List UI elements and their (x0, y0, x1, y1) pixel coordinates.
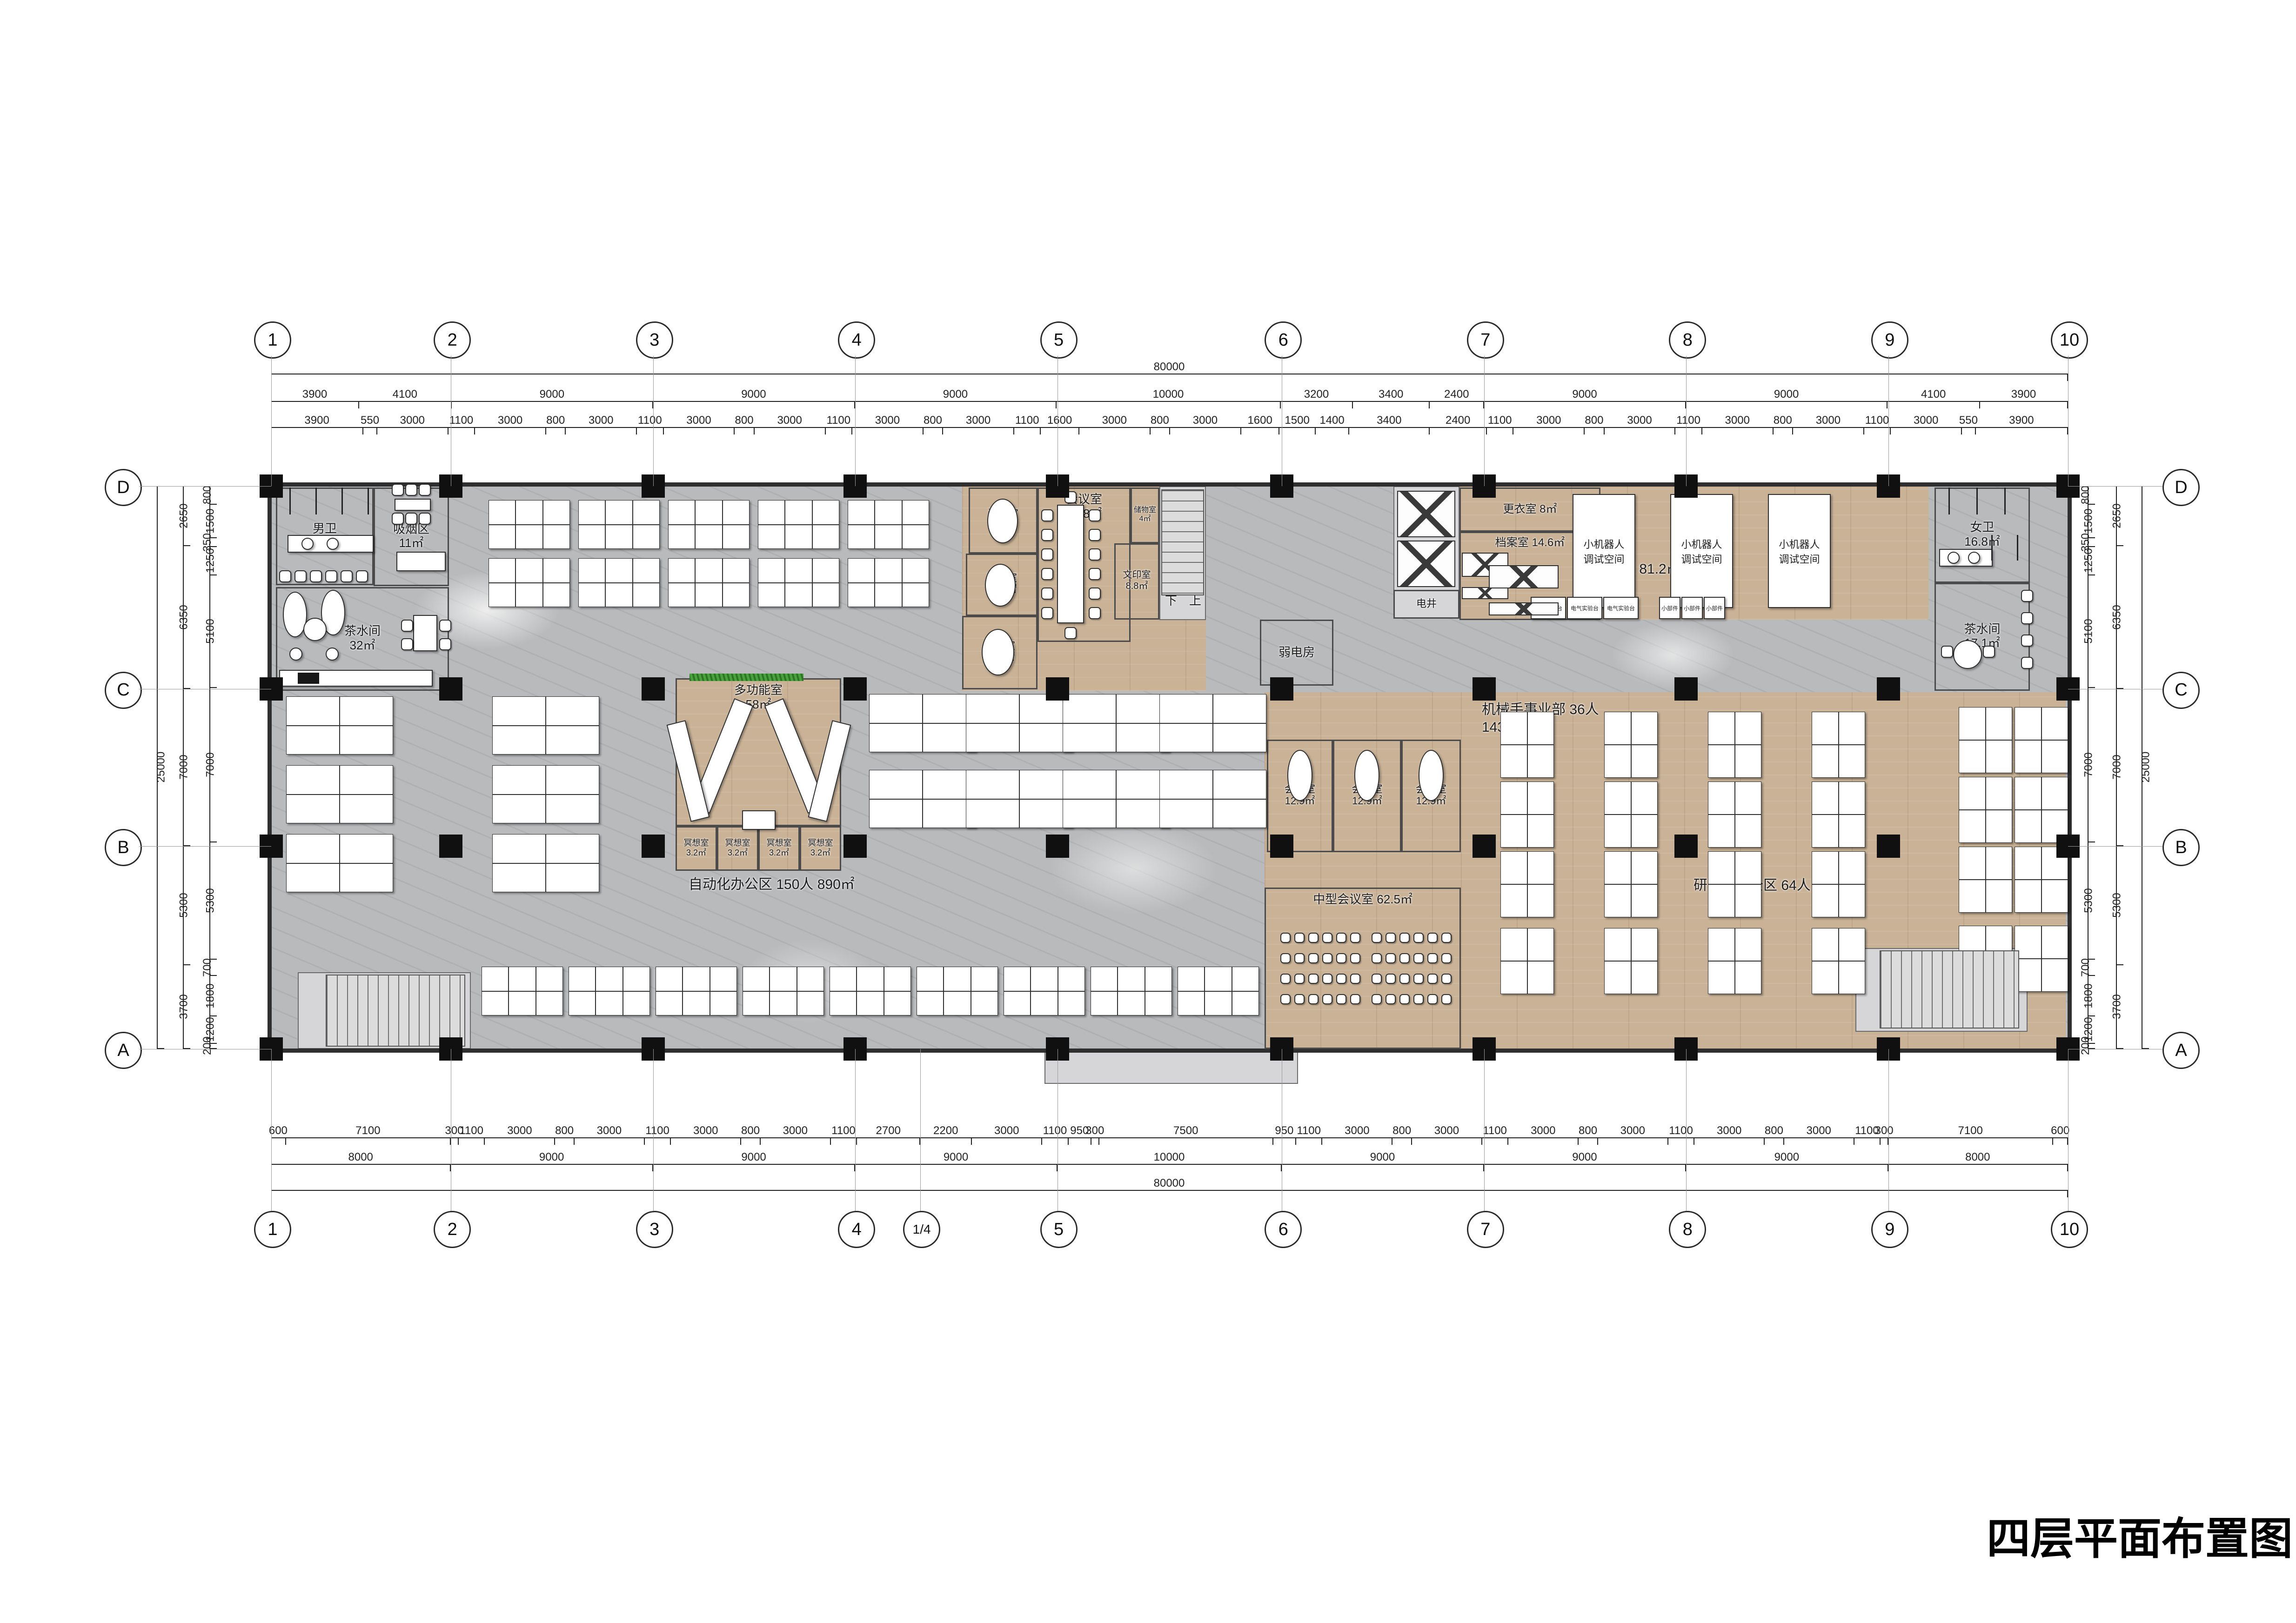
desk (857, 967, 884, 991)
desk (1986, 810, 2013, 843)
desk (1063, 723, 1116, 753)
desk (1708, 781, 1735, 815)
dim-label: 800 (201, 486, 214, 504)
desk (1839, 851, 1866, 884)
desk (1500, 961, 1527, 994)
desk (1959, 740, 1986, 773)
desk (1058, 967, 1085, 991)
desk (492, 795, 546, 824)
grid-bubble: 2 (434, 1211, 471, 1248)
desk (683, 991, 710, 1016)
grid-leader (855, 356, 856, 486)
dim-label: 2400 (1446, 414, 1470, 427)
dim-label: 200 (201, 1036, 214, 1055)
dim-seg: 3000 (1412, 1138, 1482, 1145)
desk (848, 500, 875, 525)
shelf-or-shaft (1489, 565, 1559, 588)
desk (944, 967, 971, 991)
desk (1527, 781, 1554, 815)
desk (902, 558, 929, 583)
desk (1091, 991, 1118, 1016)
dim-seg: 3000 (1508, 1138, 1579, 1145)
dim-label: 10000 (1153, 388, 1184, 401)
room-label: 冥想室 3.2㎡ (767, 838, 792, 858)
room-label: 女卫 16.8㎡ (1964, 520, 2000, 548)
desk (492, 863, 546, 893)
desk (848, 583, 875, 608)
dim-seg: 25000 (158, 486, 164, 1049)
dim-label: 1100 (449, 414, 474, 427)
lab-bench: 小部件 (1659, 597, 1680, 619)
desk (710, 967, 737, 991)
desk (917, 967, 944, 991)
desk (1986, 707, 2013, 740)
grid-bubble: B (105, 829, 142, 866)
desk (1604, 884, 1631, 917)
dim-label: 3000 (597, 1124, 622, 1137)
dim-seg: 3000 (972, 1138, 1042, 1145)
theater-chair (1322, 974, 1332, 984)
dim-seg: 8000 (1888, 1165, 2068, 1171)
desk-strip-unit (1500, 781, 1554, 848)
dim-seg: 7100 (1888, 1138, 2053, 1145)
dim-label: 300 (1875, 1124, 1894, 1137)
dim-seg: 4100 (1888, 402, 1980, 408)
round-table (1953, 640, 1982, 669)
desk (1145, 967, 1172, 991)
dim-label: 80000 (1154, 361, 1185, 374)
desk (489, 558, 515, 583)
desk (812, 558, 839, 583)
desk (286, 726, 340, 755)
dim-major-top: 3900410090009000900010000320034002400900… (271, 401, 2068, 408)
dim-seg: 3900 (1976, 428, 2068, 434)
desk-cluster (668, 500, 750, 549)
desk (546, 696, 599, 726)
dim-label: 800 (555, 1124, 574, 1137)
dim-seg: 950 (1273, 1138, 1296, 1145)
dim-seg: 5100 (2088, 575, 2095, 688)
dim-label: 1800 (204, 983, 217, 1008)
dim-label: 9000 (1370, 1151, 1395, 1164)
desk (286, 765, 340, 795)
desk (1735, 884, 1762, 917)
theater-chair (1441, 953, 1452, 963)
oval-table (982, 629, 1014, 675)
theater-chair (1441, 933, 1452, 943)
grid-bubble: A (2162, 1032, 2200, 1069)
desk (546, 726, 599, 755)
chair (279, 570, 291, 582)
stairs (1161, 489, 1204, 595)
dim-label: 1100 (1865, 414, 1889, 427)
desk (1500, 781, 1527, 815)
desk (633, 500, 660, 525)
desk (1063, 694, 1116, 723)
desk (1604, 961, 1631, 994)
desk (1205, 967, 1232, 991)
desk (1159, 723, 1213, 753)
robot-debug-table: 小机器人 调试空间 (1670, 494, 1733, 608)
desk (1500, 928, 1527, 961)
dim-seg: 950 (1069, 1138, 1091, 1145)
dim-seg: 3000 (575, 1138, 645, 1145)
theater-chair (1413, 974, 1424, 984)
dim-seg: 800 (2088, 486, 2095, 505)
dim-seg: 7000 (2088, 688, 2095, 842)
desk (546, 765, 599, 795)
room-label: 冥想室 3.2㎡ (725, 838, 750, 858)
theater-chair (1399, 933, 1410, 943)
dim-seg: 3000 (1598, 1138, 1668, 1145)
desk (1500, 851, 1527, 884)
oval-table (1354, 750, 1379, 801)
dim-seg: 700 (210, 960, 217, 976)
desk-strip-unit (1959, 707, 2012, 773)
dim-seg: 2650 (2117, 486, 2123, 546)
desk (1091, 967, 1118, 991)
dim-seg: 3000 (1891, 428, 1962, 434)
dim-label: 4100 (393, 388, 417, 401)
dim-seg: 80000 (271, 1191, 2068, 1197)
desk (723, 525, 750, 549)
desk (1812, 851, 1839, 884)
desk (1159, 770, 1213, 799)
desk-cluster (286, 696, 393, 755)
theater-chair (1427, 933, 1438, 943)
dim-label: 800 (735, 414, 754, 427)
theater-chair (1399, 994, 1410, 1004)
theater-chair (1294, 953, 1305, 963)
desk (578, 525, 605, 549)
theater-chair (1386, 953, 1396, 963)
dim-label: 9000 (944, 1151, 968, 1164)
dim-seg: 3000 (1170, 428, 1241, 434)
dim-label: 1100 (459, 1124, 483, 1137)
desk (848, 525, 875, 549)
shelf-or-shaft (1462, 587, 1508, 599)
desk (1812, 884, 1839, 917)
desk (668, 583, 695, 608)
dim-seg: 9000 (1686, 402, 1888, 408)
desk (884, 991, 911, 1016)
stairs (1880, 950, 2019, 1029)
dim-label: 4100 (1921, 388, 1946, 401)
desk (812, 583, 839, 608)
desk (1118, 991, 1145, 1016)
dim-major-bottom: 8000900090009000100009000900090008000 (271, 1164, 2068, 1171)
dim-label: 550 (361, 414, 379, 427)
desk (492, 726, 546, 755)
theater-chair (1294, 994, 1305, 1004)
desk (1004, 991, 1031, 1016)
dim-label: 7100 (355, 1124, 380, 1137)
grid-leader (1686, 1049, 1687, 1211)
desk (492, 765, 546, 795)
dim-label: 3000 (1345, 1124, 1369, 1137)
dim-label: 1100 (1676, 414, 1700, 427)
grid-bubble: 1 (254, 321, 291, 359)
theater-chair (1294, 933, 1305, 943)
grid-bubble: D (2162, 469, 2200, 506)
dim-label: 800 (741, 1124, 760, 1137)
dim-label: 5300 (178, 893, 191, 917)
dim-label: 7100 (1958, 1124, 1982, 1137)
theater-chair (1399, 953, 1410, 963)
desk-cluster (569, 967, 650, 1015)
desk (1959, 777, 1986, 810)
dim-seg: 3000 (485, 1138, 555, 1145)
desk (1708, 815, 1735, 848)
dim-seg: 550 (1962, 428, 1976, 434)
dim-seg: 600 (271, 1138, 286, 1145)
dim-label: 1100 (1483, 1124, 1507, 1137)
dim-seg: 600 (2053, 1138, 2068, 1145)
desk (869, 723, 923, 753)
room-label: 文印室 8.8㎡ (1123, 570, 1151, 592)
grid-bubble: 4 (838, 321, 875, 359)
dim-label: 3000 (498, 414, 522, 427)
grid-bubble: 5 (1040, 1211, 1078, 1248)
dim-seg: 3900 (1980, 402, 2068, 408)
desk-cluster (1063, 694, 1170, 752)
grid-bubble: 3 (636, 1211, 673, 1248)
grid-bubble: 7 (1467, 321, 1504, 359)
desk-strip-unit (2015, 707, 2068, 773)
desk-cluster (492, 696, 599, 755)
dim-label: 800 (546, 414, 565, 427)
desk-cluster (869, 694, 976, 752)
desk (482, 967, 509, 991)
grid-leader (653, 1049, 654, 1211)
dim-seg: 3000 (671, 1138, 741, 1145)
chair (310, 570, 322, 582)
dim-major-right: 26506350700053003700 (2116, 486, 2123, 1049)
desk (869, 694, 923, 723)
chair (2021, 635, 2033, 647)
desk (743, 967, 770, 991)
dim-label: 700 (2079, 958, 2092, 977)
dim-label: 800 (924, 414, 942, 427)
desk-cluster (830, 967, 911, 1015)
desk (492, 696, 546, 726)
grid-leader (1282, 1049, 1282, 1211)
desk (1986, 847, 2013, 880)
desk (1631, 781, 1658, 815)
dim-seg: 10000 (1058, 1165, 1282, 1171)
desk-cluster (286, 765, 393, 823)
dim-seg: 6350 (2117, 546, 2123, 689)
desk-cluster (869, 770, 976, 828)
chair (341, 570, 353, 582)
dim-seg: 300 (451, 1138, 459, 1145)
desk-strip-unit (1604, 928, 1658, 994)
desk (515, 525, 542, 549)
dim-label: 7000 (178, 755, 191, 779)
desk (633, 558, 660, 583)
desk (1063, 799, 1116, 828)
dim-seg: 3000 (852, 428, 924, 434)
desk (543, 525, 570, 549)
desk-strip-unit (1708, 712, 1761, 778)
desk (1604, 815, 1631, 848)
theater-chair (1413, 933, 1424, 943)
round-table (1968, 552, 1980, 564)
desk (1178, 991, 1205, 1016)
stall-partition (1976, 488, 1978, 514)
desk (509, 967, 536, 991)
theater-chair (1350, 933, 1360, 943)
dim-seg: 800 (924, 428, 943, 434)
desk (1839, 961, 1866, 994)
desk (543, 583, 570, 608)
desk-cluster (489, 500, 570, 549)
room-label: 档案室 14.6㎡ (1495, 536, 1565, 549)
dim-seg: 350 (210, 538, 217, 547)
column (1877, 835, 1900, 858)
dim-seg: 1100 (448, 428, 475, 434)
desk-cluster (482, 967, 563, 1015)
column (642, 835, 665, 858)
desk (1839, 884, 1866, 917)
grid-leader (653, 356, 654, 486)
lab-bench: 电气实验台 (1603, 597, 1639, 619)
dim-label: 950 (1275, 1124, 1293, 1137)
desk (286, 696, 340, 726)
theater-chair (1322, 933, 1332, 943)
dim-label: 9000 (741, 388, 766, 401)
grid-bubble: 5 (1040, 321, 1078, 359)
desk (785, 583, 812, 608)
grid-leader (855, 1049, 856, 1211)
dim-seg: 3900 (271, 428, 363, 434)
desk (1812, 961, 1839, 994)
desk (1159, 694, 1213, 723)
chair (1089, 607, 1101, 619)
chair (401, 620, 413, 632)
desk (2042, 777, 2068, 810)
dim-seg: 1100 (1487, 428, 1513, 434)
table (1057, 505, 1084, 623)
annotation-label: 上 (1189, 594, 1201, 608)
dim-seg: 1100 (637, 428, 663, 434)
desk (1839, 928, 1866, 961)
stall-partition (315, 488, 317, 514)
grid-bubble: C (2162, 672, 2200, 709)
round-table (303, 618, 327, 641)
dim-seg: 1600 (1041, 428, 1079, 434)
dim-label: 3000 (777, 414, 802, 427)
sink (298, 673, 319, 684)
dim-label: 7000 (204, 753, 217, 777)
desk (723, 500, 750, 525)
dim-label: 3000 (994, 1124, 1019, 1137)
dim-seg: 25000 (2142, 486, 2149, 1049)
dim-label: 8000 (348, 1151, 373, 1164)
theater-chair (1427, 974, 1438, 984)
grid-leader (2068, 689, 2162, 689)
dim-label: 5300 (2111, 893, 2124, 917)
dim-label: 800 (1392, 1124, 1411, 1137)
desk (1527, 745, 1554, 778)
lab-bench: 电气实验台 (1567, 597, 1602, 619)
desk (1213, 799, 1266, 828)
dim-seg: 5300 (2088, 842, 2095, 960)
desk (1500, 712, 1527, 745)
dim-label: 550 (1959, 414, 1978, 427)
dim-label: 1250 (204, 548, 217, 573)
desk-cluster (1178, 967, 1259, 1015)
grid-leader (271, 356, 272, 486)
grid-leader (2068, 486, 2162, 487)
desk (830, 967, 857, 991)
dim-label: 3700 (178, 994, 191, 1019)
desk (2015, 740, 2042, 773)
dim-seg: 2400 (1430, 428, 1487, 434)
desk (875, 525, 902, 549)
dim-label: 1400 (1319, 414, 1344, 427)
desk (543, 558, 570, 583)
desk (656, 991, 683, 1016)
desk (1959, 810, 1986, 843)
dim-seg: 200 (210, 1044, 217, 1049)
desk-strip-unit (1500, 928, 1554, 994)
dim-seg: 7100 (286, 1138, 451, 1145)
desk (543, 500, 570, 525)
dim-label: 3000 (507, 1124, 532, 1137)
dim-label: 3900 (2009, 414, 2034, 427)
dim-label: 3000 (966, 414, 991, 427)
dim-seg: 3000 (943, 428, 1014, 434)
desk (1527, 928, 1554, 961)
dim-seg: 3700 (2117, 965, 2123, 1049)
dim-label: 3000 (1914, 414, 1938, 427)
desk-cluster (1159, 770, 1266, 828)
desk-cluster (758, 558, 839, 607)
dim-seg: 800 (1579, 1138, 1598, 1145)
dim-label: 3000 (1531, 1124, 1555, 1137)
desk-cluster (656, 967, 737, 1015)
dim-overall-right: 25000 (2142, 486, 2149, 1049)
dim-label: 1100 (1043, 1124, 1067, 1137)
desk (758, 583, 785, 608)
desk (1604, 851, 1631, 884)
desk (830, 991, 857, 1016)
dim-seg: 1100 (1042, 1138, 1069, 1145)
dim-label: 2650 (178, 503, 191, 528)
desk (785, 500, 812, 525)
desk-cluster (286, 834, 393, 892)
dim-seg: 1100 (826, 428, 852, 434)
stall-partition (2017, 535, 2018, 561)
dim-seg: 2650 (184, 486, 190, 546)
dim-seg: 5300 (2117, 846, 2123, 965)
theater-chair (1322, 953, 1332, 963)
dim-seg: 9000 (855, 1165, 1057, 1171)
desk (1839, 712, 1866, 745)
desk (1213, 770, 1266, 799)
dim-seg: 800 (546, 428, 566, 434)
dim-seg: 350 (2088, 538, 2095, 547)
dim-seg: 1100 (1854, 1138, 1881, 1145)
desk (1631, 961, 1658, 994)
dim-seg: 800 (1585, 428, 1604, 434)
dim-seg: 700 (2088, 960, 2095, 976)
desk (723, 583, 750, 608)
desk-cluster (966, 694, 1073, 752)
dim-label: 9000 (1774, 1151, 1799, 1164)
room-label: 电井 (1416, 598, 1437, 610)
